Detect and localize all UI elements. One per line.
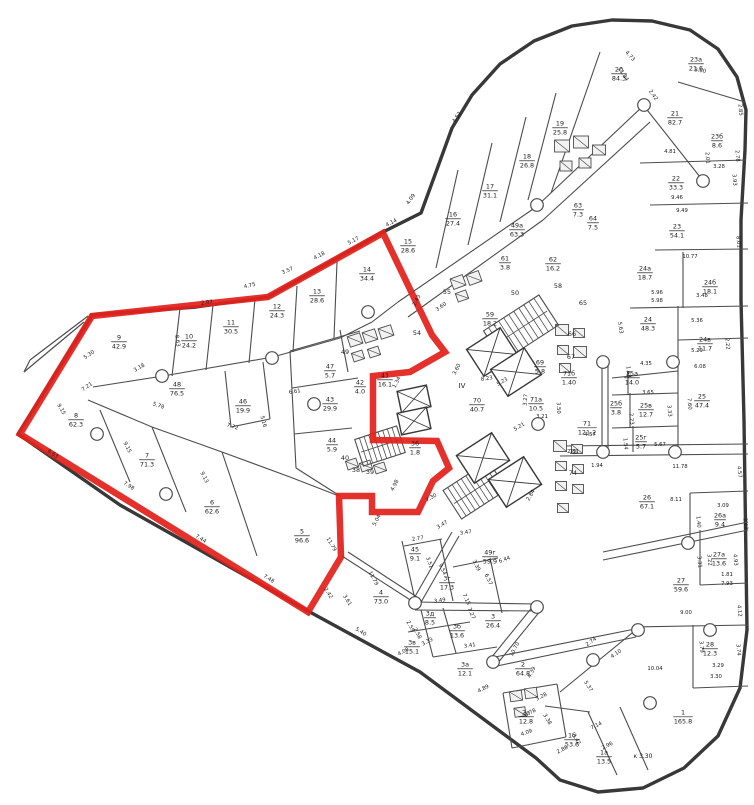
dimension-label: 3.28	[713, 164, 725, 170]
room-number: 49	[341, 348, 349, 356]
dimension-label: 2.78	[733, 150, 740, 163]
dimension-label: 3.51	[424, 556, 434, 569]
room-label: 1224.3	[269, 303, 285, 320]
room-number: 21	[671, 110, 679, 118]
dimension-label: 5.37	[582, 680, 593, 693]
wc-fixture-icon	[455, 290, 468, 302]
room-number: 70	[473, 397, 481, 405]
room-number: 27а	[713, 551, 725, 559]
room-number: 23а	[690, 56, 702, 64]
room-area: 29.9	[323, 405, 337, 413]
room-label: 1826.8	[519, 153, 535, 170]
room-number: 1	[681, 709, 685, 717]
room-number: 17	[486, 183, 494, 191]
room-number: 3	[491, 613, 495, 621]
room-label: 596.6	[294, 528, 310, 545]
room-number: 11	[227, 319, 235, 327]
column	[266, 352, 279, 365]
note-label: к 3.30	[634, 753, 653, 760]
dimension-label: 3.09	[717, 503, 729, 509]
room-number: 67	[567, 353, 575, 361]
room-area: 62.3	[69, 421, 83, 429]
column	[487, 656, 500, 669]
room-area: 7.3	[573, 211, 583, 219]
column	[156, 370, 169, 383]
wall	[557, 684, 566, 737]
wall	[560, 454, 748, 456]
dimension-label: 6.08	[694, 364, 706, 370]
room-label: 3г17.3	[439, 575, 455, 592]
room-label: 2182.7	[667, 110, 683, 127]
dimension-label: 3.57	[281, 266, 294, 276]
dimension-label: 6.44	[498, 555, 512, 565]
room-area: 16.1	[378, 381, 392, 389]
dimension-label: 4.89	[477, 684, 490, 695]
column	[632, 624, 645, 637]
room-area: 5.7	[636, 443, 646, 451]
dimension-label: 4.98	[390, 478, 401, 492]
room-area: 59.6	[674, 586, 688, 594]
room-area: 12.1	[458, 670, 472, 678]
dimension-label: 4.93	[731, 554, 738, 566]
dimension-label: 3.47	[460, 529, 473, 537]
dimension-label: 3.79	[697, 641, 704, 653]
dimension-label: 1.81	[721, 572, 733, 578]
room-label: 445.9	[326, 437, 338, 454]
room-number: 49а	[511, 222, 523, 230]
dimension-label: 3.38	[541, 713, 552, 727]
room-number: 41	[381, 372, 389, 380]
room-label: 2547.4	[694, 393, 710, 410]
dimension-label: 5.04	[372, 513, 383, 527]
dimension-label: 5.30	[83, 349, 97, 361]
dimension-label: 3.31	[695, 556, 702, 568]
dimension-label: 9.49	[676, 208, 688, 214]
dimension-label: 4.39	[527, 666, 538, 679]
room-area: 9.4	[715, 521, 725, 529]
dimension-label: 2.85	[736, 104, 743, 116]
room-label: 71б1.40	[561, 370, 577, 387]
room-label: 67	[567, 353, 575, 361]
room-number: 14	[363, 266, 371, 274]
wc-fixture-icon	[466, 271, 482, 286]
wc-fixture-icon	[555, 140, 570, 152]
wall	[249, 299, 255, 363]
dimension-label: 7.72	[226, 422, 239, 431]
wall	[93, 376, 163, 387]
wall	[603, 530, 748, 560]
room-label: 862.3	[68, 412, 84, 429]
room-number: 71	[583, 420, 591, 428]
room-area: 14.0	[625, 379, 639, 387]
room-area: 3.8	[500, 264, 510, 272]
wall	[678, 82, 745, 102]
room-number: 48	[173, 381, 181, 389]
room-number: 74	[569, 469, 577, 477]
column	[704, 624, 717, 637]
room-number: 71б	[563, 370, 575, 378]
wc-fixture-icon	[509, 690, 522, 702]
room-number: 59	[486, 311, 494, 319]
room-area: 27.4	[446, 220, 460, 228]
room-number: 45	[411, 546, 419, 554]
room-number: 25б	[610, 400, 622, 408]
dimension-label: 3.61	[341, 594, 352, 607]
room-number: 39	[366, 468, 374, 476]
dimension-label: 4.35	[640, 361, 652, 367]
dimension-label: 7.27	[466, 607, 476, 620]
dimension-label: 7.60	[685, 398, 692, 411]
dimension-label: 2.69	[741, 518, 748, 530]
room-number: 40	[341, 454, 349, 462]
dimension-label: 11.79	[367, 570, 379, 586]
room-area: 47.4	[695, 402, 709, 410]
room-number: 24	[644, 316, 652, 324]
room-number: 6	[210, 499, 214, 507]
room-label: 771.3	[139, 452, 155, 469]
dimension-label: 4.09	[520, 728, 533, 738]
room-label: 4329.9	[322, 396, 338, 413]
room-label: 25б3.8	[610, 400, 622, 417]
stair-icon	[355, 426, 405, 466]
room-area: 28.6	[401, 247, 415, 255]
room-label: 1434.4	[359, 266, 375, 283]
room-number: 25	[698, 393, 706, 401]
room-number: 24б	[704, 279, 716, 287]
dimension-label: 5.67	[654, 442, 666, 448]
room-area: 5.8	[535, 368, 545, 376]
room-area: 25.8	[553, 129, 567, 137]
dimension-label: 3.65	[642, 390, 654, 396]
wc-fixture-icon	[556, 482, 567, 491]
room-area: 10.5	[529, 405, 543, 413]
room-area: 26.8	[520, 162, 534, 170]
room-area: 13.6	[712, 560, 726, 568]
wc-fixture-icon	[378, 325, 394, 339]
dimension-label: 9.13	[198, 471, 209, 484]
dimension-label: 8.23	[481, 375, 494, 383]
dimension-label: 3.22	[705, 554, 712, 566]
room-number: 12	[273, 303, 281, 311]
room-label: 613.8	[499, 255, 511, 272]
room-label: 66	[568, 330, 576, 338]
room-label: 326.4	[485, 613, 501, 630]
dimension-label: 3.48	[696, 293, 708, 299]
room-label: 1130.5	[223, 319, 239, 336]
wall	[290, 351, 296, 468]
dimension-label: 5.21	[513, 422, 526, 433]
room-area: 67.1	[640, 503, 654, 511]
dimension-label: 7.98	[122, 480, 136, 492]
dimension-label: 5.78	[152, 401, 166, 411]
room-number: 44	[328, 437, 336, 445]
wall	[650, 203, 748, 205]
wc-fixture-icon	[573, 485, 584, 494]
wall	[263, 362, 270, 419]
room-number: 24а	[639, 265, 651, 273]
room-area: 8.5	[425, 619, 435, 627]
room-area: 4.0	[355, 388, 365, 396]
room-area: 1.8	[410, 449, 420, 457]
room-label: 49а63.3	[509, 222, 525, 239]
room-label: 38	[352, 466, 360, 474]
room-label: 55	[443, 288, 451, 296]
dimension-label: 3.33	[421, 637, 434, 648]
dimension-label: 1.40	[694, 516, 701, 529]
room-label: 58	[554, 282, 562, 290]
room-label: 1165.8	[673, 709, 693, 726]
wall	[678, 338, 748, 340]
column	[638, 99, 651, 112]
dimension-label: 4.18	[313, 250, 327, 261]
room-number: 19	[556, 120, 564, 128]
room-label: 7040.7	[469, 397, 485, 414]
room-area: 31.1	[483, 192, 497, 200]
wall	[152, 427, 222, 452]
room-label: 459.1	[409, 546, 421, 563]
room-label: 942.9	[111, 334, 127, 351]
room-number: 18	[523, 153, 531, 161]
wc-fixture-icon	[554, 441, 567, 452]
column	[409, 597, 422, 610]
dimension-label: 3.60	[435, 301, 449, 313]
wall	[690, 491, 748, 493]
room-label: 74	[569, 469, 577, 477]
room-area: 12.7	[639, 411, 653, 419]
dimension-label: 2.77	[412, 535, 425, 543]
wall	[497, 610, 541, 664]
wc-fixture-icon	[556, 462, 567, 471]
wall	[633, 625, 748, 627]
dimension-label: 3.41	[464, 642, 477, 650]
dimension-label: 2.97	[201, 299, 213, 306]
wall	[293, 286, 297, 352]
dimension-label: 5.63	[616, 321, 624, 334]
wc-fixture-icon	[558, 504, 569, 513]
dimension-label: 5.16	[259, 415, 268, 429]
room-area: 1.40	[562, 379, 576, 387]
dimension-label: 11.78	[672, 464, 688, 470]
wall	[294, 428, 352, 434]
column	[682, 537, 695, 550]
room-label: 2448.3	[640, 316, 656, 333]
column	[587, 654, 600, 667]
room-area: 62.6	[205, 508, 219, 516]
room-area: 18.2	[483, 320, 497, 328]
wall	[528, 93, 556, 200]
room-area: 73.0	[374, 598, 388, 606]
room-label: 71а10.5	[528, 396, 544, 413]
dimension-label: 9.00	[680, 610, 692, 616]
dimension-label: 5.36	[691, 318, 703, 324]
wc-fixture-icon	[574, 136, 589, 148]
dimension-label: 3.30	[710, 674, 722, 680]
room-label: 39	[366, 468, 374, 476]
dimension-label: 7.21	[81, 381, 94, 393]
room-number: 38	[352, 466, 360, 474]
dimension-label: 1.34	[392, 375, 403, 389]
room-number: 42	[356, 379, 364, 387]
room-number: 13	[313, 288, 321, 296]
dimension-label: 1.54	[621, 438, 628, 451]
room-area: 54.1	[670, 232, 684, 240]
wall	[640, 160, 746, 163]
column	[669, 446, 682, 459]
room-label: 26а9.4	[714, 512, 726, 529]
wall	[206, 305, 213, 370]
highlight-outline	[20, 233, 449, 612]
wall	[545, 706, 590, 712]
room-label: 3а12.1	[457, 661, 473, 678]
room-label: 647.5	[587, 215, 599, 232]
dimension-label: 3.50	[555, 402, 561, 415]
dimension-label: 3.29	[712, 663, 724, 669]
room-label: 662.6	[204, 499, 220, 516]
wall	[225, 371, 231, 427]
dimension-label: 8.63	[173, 335, 181, 348]
room-number: 25в	[640, 402, 652, 410]
column	[531, 199, 544, 212]
room-area: 71.3	[140, 461, 154, 469]
dimension-label: 1.94	[591, 463, 603, 469]
wc-fixture-icon	[373, 462, 386, 474]
room-area: 8.6	[712, 142, 722, 150]
dimension-label: 8.01	[734, 236, 741, 248]
room-label: 50	[511, 289, 519, 297]
room-area: 165.8	[674, 718, 692, 726]
room-label: 475.7	[324, 363, 336, 380]
dimension-label: 4.57	[584, 432, 596, 438]
room-label: 424.0	[354, 379, 366, 396]
room-number: 63	[574, 202, 582, 210]
wall	[630, 306, 748, 308]
dimension-label: 2.22	[723, 338, 730, 350]
dimension-label: 1.68	[624, 366, 631, 379]
dimension-label: 4.09	[405, 193, 417, 206]
room-number: 61	[501, 255, 509, 263]
room-label: 5918.2	[482, 311, 498, 328]
dimension-label: 9.46	[671, 195, 683, 201]
dimension-label: 2.81	[567, 449, 579, 455]
wall	[334, 262, 337, 338]
room-number: 28	[706, 641, 714, 649]
room-number: 15	[404, 238, 412, 246]
dimension-label: 10.70	[509, 641, 522, 658]
room-area: 3.8	[611, 409, 621, 417]
room-area: 76.5	[170, 390, 184, 398]
column	[597, 446, 610, 459]
column	[667, 356, 680, 369]
dimension-label: 5.98	[651, 298, 663, 304]
room-number: 66	[568, 330, 576, 338]
room-number: 22	[672, 175, 680, 183]
wall	[163, 357, 273, 376]
dimension-label: 4.12	[735, 605, 742, 617]
dimension-label: 3.93	[730, 174, 737, 186]
room-label: 2233.3	[668, 175, 684, 192]
dimension-label: 9.15	[55, 403, 66, 416]
room-label: 54	[413, 329, 421, 337]
room-label: 637.3	[572, 202, 584, 219]
room-label: 695.8	[534, 359, 546, 376]
column	[531, 601, 544, 614]
dimension-label: 3.60	[452, 362, 463, 376]
wc-fixture-icon	[593, 145, 606, 155]
dimension-label: 3.33	[665, 405, 672, 417]
room-label: 27а13.6	[711, 551, 727, 568]
column	[308, 398, 321, 411]
room-number: 3б	[453, 623, 461, 631]
room-area: 59.9	[483, 558, 497, 566]
column	[644, 697, 657, 710]
dimension-label: 2.42	[322, 587, 333, 600]
room-number: 3а	[461, 661, 469, 669]
room-number: 23б	[711, 133, 723, 141]
room-area: 13.5	[597, 758, 611, 766]
room-label: 25г5.7	[635, 434, 647, 451]
room-number: 64	[589, 215, 597, 223]
dimension-label: 3.18	[133, 362, 147, 373]
dimension-label: 2.01	[703, 152, 710, 164]
room-number: 71а	[530, 396, 542, 404]
room-area: 9.1	[410, 555, 420, 563]
room-number: 3в	[408, 639, 416, 647]
room-label: 49г59.9	[482, 549, 498, 566]
room-area: 18.7	[638, 274, 652, 282]
room-label: 1627.4	[445, 211, 461, 228]
room-number: 50	[511, 289, 519, 297]
dimension-label: 10.04	[647, 666, 663, 672]
dimension-label: 4.73	[624, 50, 636, 63]
room-number: 10	[185, 333, 193, 341]
room-area: 33.3	[669, 184, 683, 192]
room-number: 8	[74, 412, 78, 420]
dimension-label: 11.79	[324, 536, 337, 552]
room-number: 3г	[443, 575, 451, 583]
room-area: 48.3	[641, 325, 655, 333]
wall	[490, 558, 502, 613]
room-number: 24в	[699, 336, 711, 344]
wall	[612, 426, 678, 428]
room-area: 17.3	[440, 584, 454, 592]
dimension-label: 3.47	[436, 520, 449, 531]
room-number: 62	[549, 256, 557, 264]
dimension-label: 5.96	[651, 290, 663, 296]
room-number: 47	[326, 363, 334, 371]
room-area: 28.6	[310, 297, 324, 305]
dimension-label: 3.39	[471, 559, 481, 572]
room-area: 34.4	[360, 275, 374, 283]
room-number: 5	[300, 528, 304, 536]
room-label: 2759.6	[673, 577, 689, 594]
dimension-label: 3.27	[523, 394, 530, 406]
room-area: 26.4	[486, 622, 500, 630]
dimension-label: 9.15	[121, 441, 132, 454]
room-label: 40	[341, 454, 349, 462]
dimension-label: 5.29	[691, 348, 703, 354]
room-label: 1528.6	[400, 238, 416, 255]
room-number: 36	[411, 440, 419, 448]
room-area: 40.7	[470, 406, 484, 414]
dimension-label: 10.77	[682, 254, 697, 260]
room-number: 55	[443, 288, 451, 296]
room-area: 16.2	[546, 265, 560, 273]
room-number: 4	[379, 589, 383, 597]
wall	[655, 249, 748, 250]
wall	[612, 371, 678, 378]
room-label: 1731.1	[482, 183, 498, 200]
room-number: 27	[677, 577, 685, 585]
